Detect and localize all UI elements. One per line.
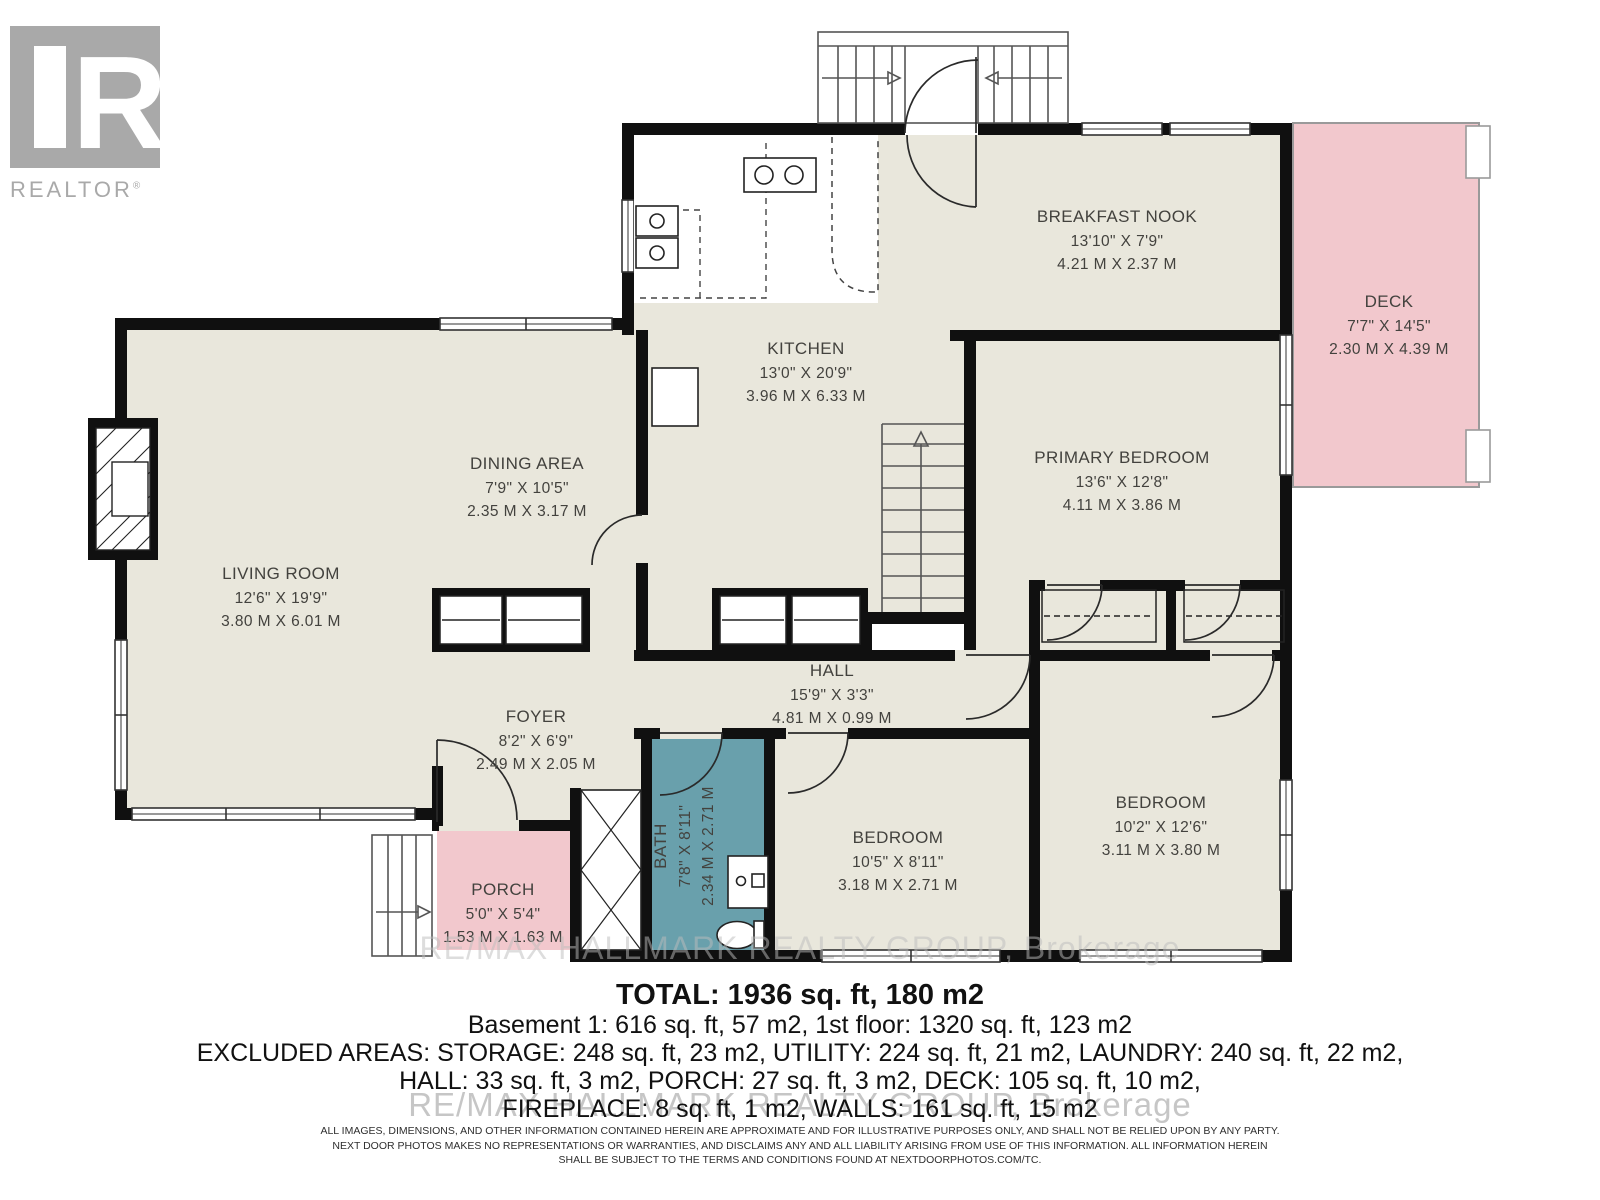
deck-steps — [1466, 126, 1490, 482]
room-label-deck: DECK 7'7" X 14'5" 2.30 M X 4.39 M — [1329, 289, 1449, 361]
room-label-bedroom-b: BEDROOM 10'2" X 12'6" 3.11 M X 3.80 M — [1102, 790, 1221, 862]
disclaimer-line: NEXT DOOR PHOTOS MAKES NO REPRESENTATION… — [0, 1139, 1600, 1154]
total-area-line: TOTAL: 1936 sq. ft, 180 m2 — [0, 979, 1600, 1011]
realtor-logo-text: REALTOR® — [10, 177, 180, 203]
room-label-foyer: FOYER 8'2" X 6'9" 2.49 M X 2.05 M — [476, 704, 596, 776]
disclaimer-text: ALL IMAGES, DIMENSIONS, AND OTHER INFORM… — [0, 1124, 1600, 1168]
realtor-logo-mark: R — [10, 26, 160, 168]
exterior-stairs — [818, 32, 1068, 123]
room-label-dining-area: DINING AREA 7'9" X 10'5" 2.35 M X 3.17 M — [467, 451, 587, 523]
summary-line: HALL: 33 sq. ft, 3 m2, PORCH: 27 sq. ft,… — [0, 1067, 1600, 1095]
realtor-logo: R REALTOR® — [10, 26, 180, 203]
summary-line: EXCLUDED AREAS: STORAGE: 248 sq. ft, 23 … — [0, 1039, 1600, 1067]
summary-line: Basement 1: 616 sq. ft, 57 m2, 1st floor… — [0, 1011, 1600, 1039]
room-label-bedroom-a: BEDROOM 10'5" X 8'11" 3.18 M X 2.71 M — [838, 825, 958, 897]
room-label-bath: BATH 7'8" X 8'11" 2.34 M X 2.71 M — [648, 786, 720, 906]
room-label-primary-bedroom: PRIMARY BEDROOM 13'6" X 12'8" 4.11 M X 3… — [1034, 445, 1209, 517]
interior-stairs — [882, 424, 964, 612]
brokerage-watermark: RE/MAX HALLMARK REALTY GROUP, Brokerage — [0, 930, 1600, 967]
fireplace-hatch — [96, 428, 150, 550]
summary-line: FIREPLACE: 8 sq. ft, 1 m2, WALLS: 161 sq… — [0, 1095, 1600, 1123]
area-summary: TOTAL: 1936 sq. ft, 180 m2 Basement 1: 6… — [0, 979, 1600, 1123]
room-label-living-room: LIVING ROOM 12'6" X 19'9" 3.80 M X 6.01 … — [221, 561, 341, 633]
disclaimer-line: ALL IMAGES, DIMENSIONS, AND OTHER INFORM… — [0, 1124, 1600, 1139]
room-label-hall: HALL 15'9" X 3'3" 4.81 M X 0.99 M — [772, 658, 892, 730]
closets — [440, 590, 1284, 644]
disclaimer-line: SHALL BE SUBJECT TO THE TERMS AND CONDIT… — [0, 1153, 1600, 1168]
room-label-breakfast-nook: BREAKFAST NOOK 13'10" X 7'9" 4.21 M X 2.… — [1037, 204, 1197, 276]
svg-text:R: R — [72, 29, 160, 168]
floor-plan-page: BREAKFAST NOOK 13'10" X 7'9" 4.21 M X 2.… — [0, 0, 1600, 1200]
room-label-kitchen: KITCHEN 13'0" X 20'9" 3.96 M X 6.33 M — [746, 336, 866, 408]
